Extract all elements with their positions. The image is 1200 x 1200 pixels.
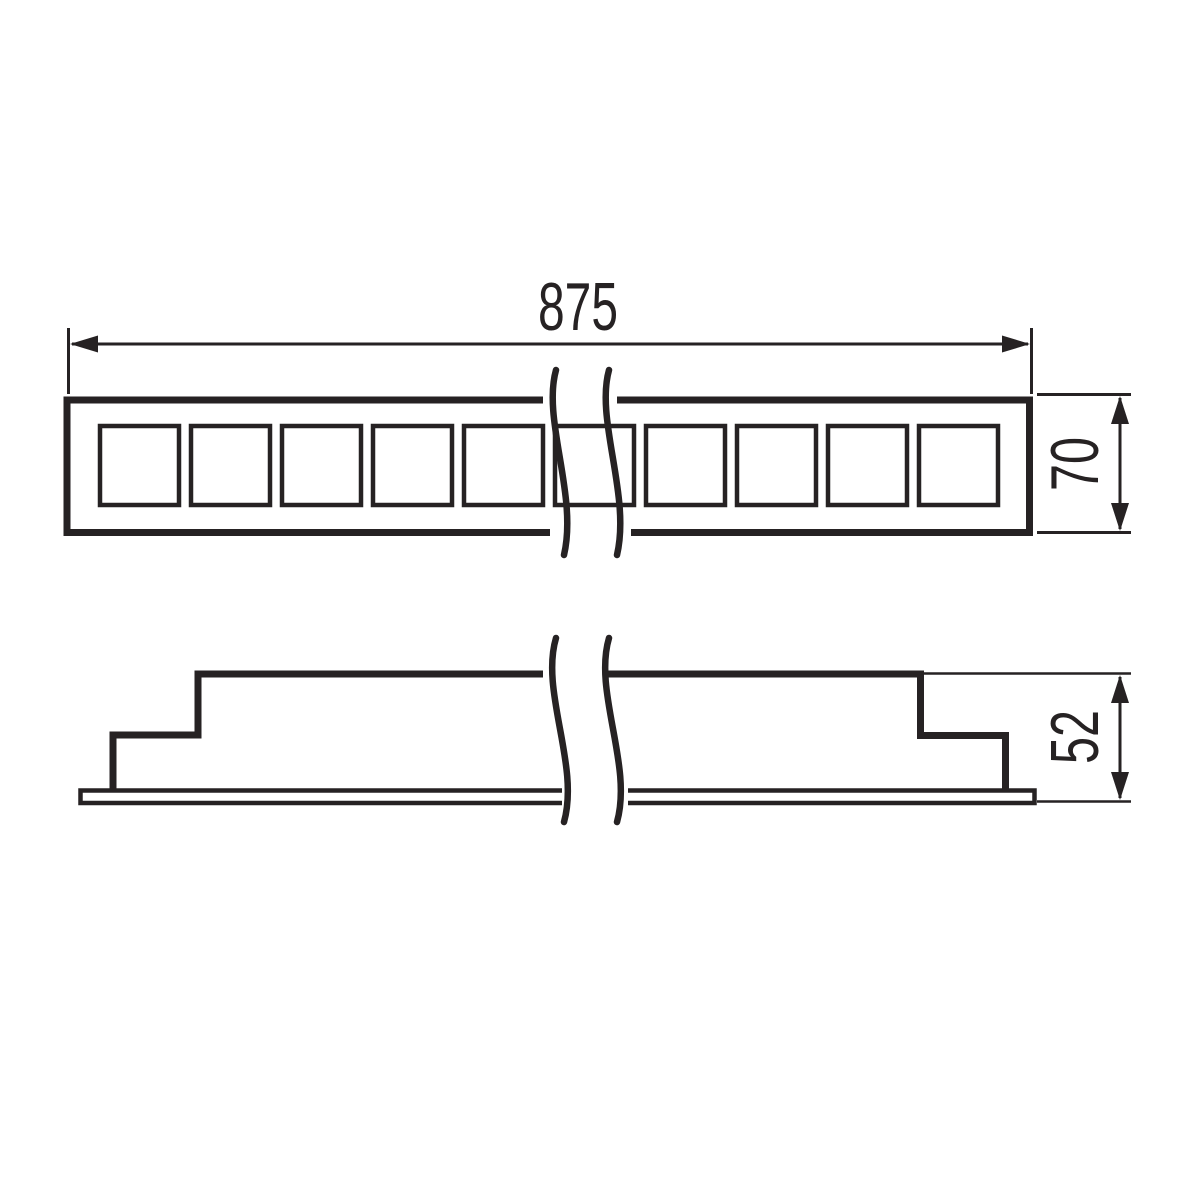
side-profile-left [113, 674, 543, 791]
cell [646, 426, 725, 505]
cell [282, 426, 361, 505]
front-body-outline-left [67, 400, 550, 533]
arrowhead-down-icon [1111, 503, 1129, 531]
arrowhead-right-icon [1002, 336, 1030, 353]
depth-dimension-label-group: 52 [1037, 710, 1113, 764]
arrowhead-up-icon [1111, 396, 1129, 424]
flange-left [81, 791, 563, 804]
cell-row [100, 426, 998, 505]
cell [828, 426, 907, 505]
cell [191, 426, 270, 505]
front-view: 875 70 [67, 269, 1131, 555]
flange-right [628, 791, 1035, 804]
cell [464, 426, 543, 505]
drawing-svg: 875 70 [0, 0, 1200, 1200]
break-squiggle-right-icon [605, 638, 621, 822]
height-dimension: 70 [1037, 395, 1131, 533]
height-dimension-label-group: 70 [1037, 437, 1113, 491]
side-profile-right [603, 674, 1006, 791]
front-body-outline-right [617, 400, 1030, 533]
arrowhead-left-icon [70, 336, 98, 353]
side-break-lines [552, 638, 621, 822]
arrowhead-down-icon [1111, 772, 1129, 800]
width-dimension: 875 [69, 269, 1032, 394]
cell [737, 426, 816, 505]
cell [919, 426, 998, 505]
arrowhead-up-icon [1111, 675, 1129, 703]
mounting-flange [81, 791, 1035, 804]
depth-dimension-label: 52 [1037, 710, 1113, 764]
dimension-drawing: 875 70 [0, 0, 1200, 1200]
cell [100, 426, 179, 505]
side-view: 52 [81, 638, 1132, 822]
cell [373, 426, 452, 505]
break-squiggle-left-icon [552, 638, 568, 822]
height-dimension-label: 70 [1037, 437, 1113, 491]
width-dimension-label: 875 [538, 269, 618, 345]
front-break-lines [553, 370, 621, 555]
